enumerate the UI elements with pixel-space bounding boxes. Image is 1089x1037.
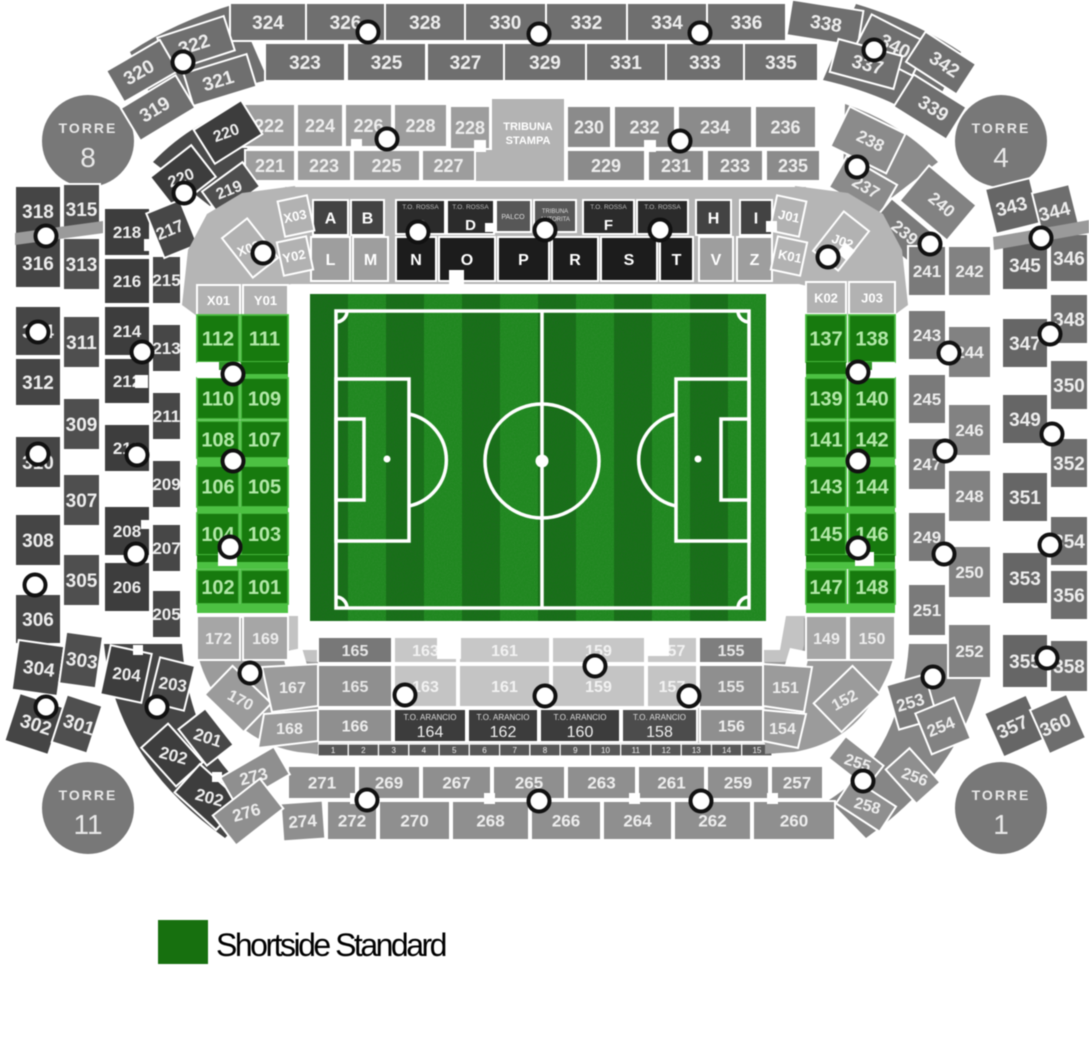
svg-text:224: 224 [305,116,335,136]
svg-text:12: 12 [662,746,671,755]
svg-text:L: L [326,252,336,269]
svg-text:150: 150 [859,631,886,648]
svg-text:142: 142 [855,430,888,452]
svg-text:161: 161 [491,679,518,696]
svg-text:P: P [518,252,529,269]
svg-text:149: 149 [813,631,840,648]
svg-text:305: 305 [66,571,98,592]
svg-text:K02: K02 [814,291,838,306]
svg-text:T: T [672,252,682,269]
svg-text:D: D [465,217,476,234]
svg-text:252: 252 [955,642,983,661]
svg-text:353: 353 [1009,569,1041,590]
svg-text:331: 331 [610,53,642,74]
svg-text:T.O. ARANCIO: T.O. ARANCIO [477,713,530,722]
svg-text:5: 5 [452,746,457,755]
svg-text:329: 329 [529,53,561,74]
svg-text:139: 139 [809,389,842,411]
svg-text:208: 208 [113,522,141,541]
svg-text:241: 241 [913,262,941,281]
svg-text:218: 218 [113,223,141,242]
svg-text:TORRE: TORRE [59,787,118,803]
svg-text:162: 162 [490,724,517,741]
svg-text:110: 110 [202,389,234,411]
svg-text:356: 356 [1053,586,1085,607]
svg-text:T.O. ROSSA: T.O. ROSSA [644,204,681,211]
svg-text:101: 101 [248,577,281,599]
svg-text:J03: J03 [861,291,883,306]
svg-text:M: M [364,252,377,269]
svg-text:234: 234 [700,118,730,138]
svg-text:160: 160 [567,724,594,741]
svg-text:T.O. ROSSA: T.O. ROSSA [452,204,489,211]
svg-text:261: 261 [657,774,685,793]
svg-text:164: 164 [417,724,444,741]
svg-text:T.O. ARANCIO: T.O. ARANCIO [633,713,686,722]
svg-text:345: 345 [1009,256,1041,277]
svg-text:207: 207 [152,539,180,558]
svg-text:9: 9 [573,746,578,755]
svg-text:112: 112 [202,329,234,351]
svg-text:1: 1 [993,809,1009,840]
svg-text:235: 235 [778,156,808,176]
svg-text:103: 103 [248,524,281,546]
svg-text:F: F [604,217,613,234]
svg-text:257: 257 [783,774,811,793]
svg-text:327: 327 [450,53,482,74]
svg-text:325: 325 [371,53,403,74]
svg-text:351: 351 [1009,488,1041,509]
svg-text:141: 141 [809,430,842,452]
svg-text:274: 274 [288,811,318,832]
svg-text:313: 313 [66,255,98,276]
svg-text:304: 304 [22,657,57,682]
svg-text:1: 1 [331,746,336,755]
svg-text:TORRE: TORRE [972,120,1031,136]
svg-text:315: 315 [66,200,98,221]
svg-text:209: 209 [152,475,180,494]
svg-text:Y01: Y01 [254,293,277,308]
svg-text:TORRE: TORRE [972,787,1031,803]
svg-text:269: 269 [375,774,403,793]
svg-text:332: 332 [571,13,603,34]
svg-text:167: 167 [279,680,306,697]
svg-text:A: A [325,210,337,227]
svg-text:306: 306 [22,610,54,631]
svg-text:148: 148 [855,577,888,599]
svg-text:206: 206 [113,578,141,597]
svg-text:271: 271 [308,774,336,793]
svg-text:204: 204 [111,664,142,686]
svg-text:228: 228 [455,118,485,138]
svg-text:144: 144 [855,477,889,499]
svg-text:111: 111 [249,329,280,351]
svg-text:151: 151 [772,680,799,697]
svg-text:8: 8 [80,142,96,173]
svg-text:154: 154 [769,721,796,738]
svg-text:169: 169 [252,631,279,648]
svg-text:228: 228 [405,116,435,136]
svg-text:203: 203 [157,673,188,696]
svg-text:242: 242 [955,262,983,281]
svg-text:O: O [461,252,473,269]
svg-text:205: 205 [152,605,180,624]
svg-text:155: 155 [718,643,745,660]
svg-text:227: 227 [433,156,463,176]
svg-text:324: 324 [252,13,284,34]
svg-text:330: 330 [490,13,522,34]
svg-text:263: 263 [587,774,615,793]
svg-text:T.O. ROSSA: T.O. ROSSA [402,204,439,211]
svg-text:V: V [711,252,722,269]
svg-text:TORRE: TORRE [59,120,118,136]
svg-text:323: 323 [289,53,321,74]
svg-text:312: 312 [22,373,54,394]
svg-text:3: 3 [391,746,396,755]
svg-text:11: 11 [73,809,102,840]
svg-text:230: 230 [574,118,604,138]
svg-text:10: 10 [601,746,610,755]
svg-text:R: R [569,252,581,269]
svg-text:H: H [708,210,720,227]
svg-text:S: S [624,252,635,269]
svg-text:267: 267 [442,774,470,793]
svg-text:11: 11 [632,746,641,755]
svg-text:350: 350 [1053,376,1085,397]
svg-text:156: 156 [718,718,745,735]
svg-text:TRIBUNA: TRIBUNA [503,121,553,133]
svg-text:232: 232 [629,118,659,138]
svg-text:243: 243 [913,326,941,345]
svg-text:221: 221 [255,156,285,176]
svg-text:PALCO: PALCO [501,214,525,221]
svg-text:N: N [410,252,422,269]
svg-text:8: 8 [543,746,548,755]
svg-text:333: 333 [689,53,721,74]
svg-text:140: 140 [855,389,888,411]
svg-text:223: 223 [309,156,339,176]
svg-text:166: 166 [342,718,369,735]
svg-text:B: B [362,210,374,227]
svg-text:137: 137 [809,329,842,351]
svg-text:T.O. ROSSA: T.O. ROSSA [590,204,627,211]
svg-text:266: 266 [552,812,580,831]
svg-text:STAMPA: STAMPA [506,135,551,147]
svg-text:138: 138 [855,329,888,351]
svg-text:106: 106 [201,477,234,499]
svg-text:172: 172 [205,631,232,648]
svg-text:335: 335 [765,53,797,74]
svg-text:2: 2 [361,746,366,755]
svg-text:161: 161 [491,643,518,660]
svg-text:213: 213 [152,339,180,358]
svg-text:272: 272 [338,812,366,831]
svg-text:107: 107 [248,430,281,452]
svg-text:349: 349 [1009,410,1041,431]
svg-text:216: 216 [113,272,141,291]
svg-text:4: 4 [422,746,427,755]
svg-text:Shortside Standard: Shortside Standard [216,927,446,963]
svg-text:346: 346 [1053,249,1085,270]
svg-text:347: 347 [1009,334,1041,355]
svg-text:334: 334 [651,13,683,34]
svg-text:108: 108 [201,430,234,452]
svg-text:251: 251 [913,601,941,620]
svg-text:145: 145 [809,524,842,546]
svg-text:165: 165 [342,643,369,660]
svg-text:143: 143 [809,477,842,499]
svg-text:Z: Z [750,252,760,269]
svg-text:214: 214 [113,322,142,341]
svg-text:15: 15 [752,746,761,755]
svg-text:309: 309 [66,415,98,436]
svg-text:270: 270 [400,812,428,831]
svg-text:231: 231 [661,156,691,176]
svg-text:246: 246 [955,421,983,440]
svg-text:T.O. ARANCIO: T.O. ARANCIO [554,713,607,722]
svg-text:318: 318 [22,202,54,223]
svg-text:233: 233 [720,156,750,176]
svg-text:163: 163 [412,643,439,660]
svg-text:102: 102 [201,577,234,599]
svg-text:248: 248 [955,487,983,506]
svg-text:225: 225 [371,156,401,176]
svg-text:211: 211 [153,407,180,426]
svg-text:13: 13 [692,746,701,755]
svg-text:311: 311 [66,333,97,354]
svg-text:303: 303 [65,649,99,674]
svg-text:7: 7 [512,746,517,755]
svg-text:229: 229 [591,156,621,176]
svg-text:352: 352 [1053,454,1085,475]
svg-text:236: 236 [770,118,800,138]
svg-text:168: 168 [276,721,303,738]
svg-text:159: 159 [585,679,612,696]
svg-text:147: 147 [809,577,842,599]
svg-text:158: 158 [646,724,673,741]
svg-text:260: 260 [780,812,808,831]
svg-text:316: 316 [22,254,54,275]
svg-text:6: 6 [482,746,487,755]
svg-text:250: 250 [955,563,983,582]
svg-text:262: 262 [698,812,726,831]
svg-text:268: 268 [476,812,504,831]
svg-text:215: 215 [152,271,180,290]
svg-text:264: 264 [623,812,652,831]
svg-text:TRIBUNA: TRIBUNA [542,209,568,215]
svg-text:109: 109 [248,389,281,411]
svg-text:245: 245 [913,390,941,409]
svg-text:105: 105 [248,477,281,499]
svg-text:T.O. ARANCIO: T.O. ARANCIO [404,713,457,722]
svg-text:14: 14 [722,746,731,755]
svg-text:I: I [754,210,758,227]
svg-text:165: 165 [342,679,369,696]
svg-text:328: 328 [409,13,441,34]
svg-text:4: 4 [993,142,1009,173]
svg-text:307: 307 [66,491,98,512]
svg-text:155: 155 [718,679,745,696]
svg-text:336: 336 [731,13,763,34]
svg-text:259: 259 [724,774,752,793]
svg-text:X01: X01 [207,293,230,308]
svg-text:308: 308 [22,531,54,552]
